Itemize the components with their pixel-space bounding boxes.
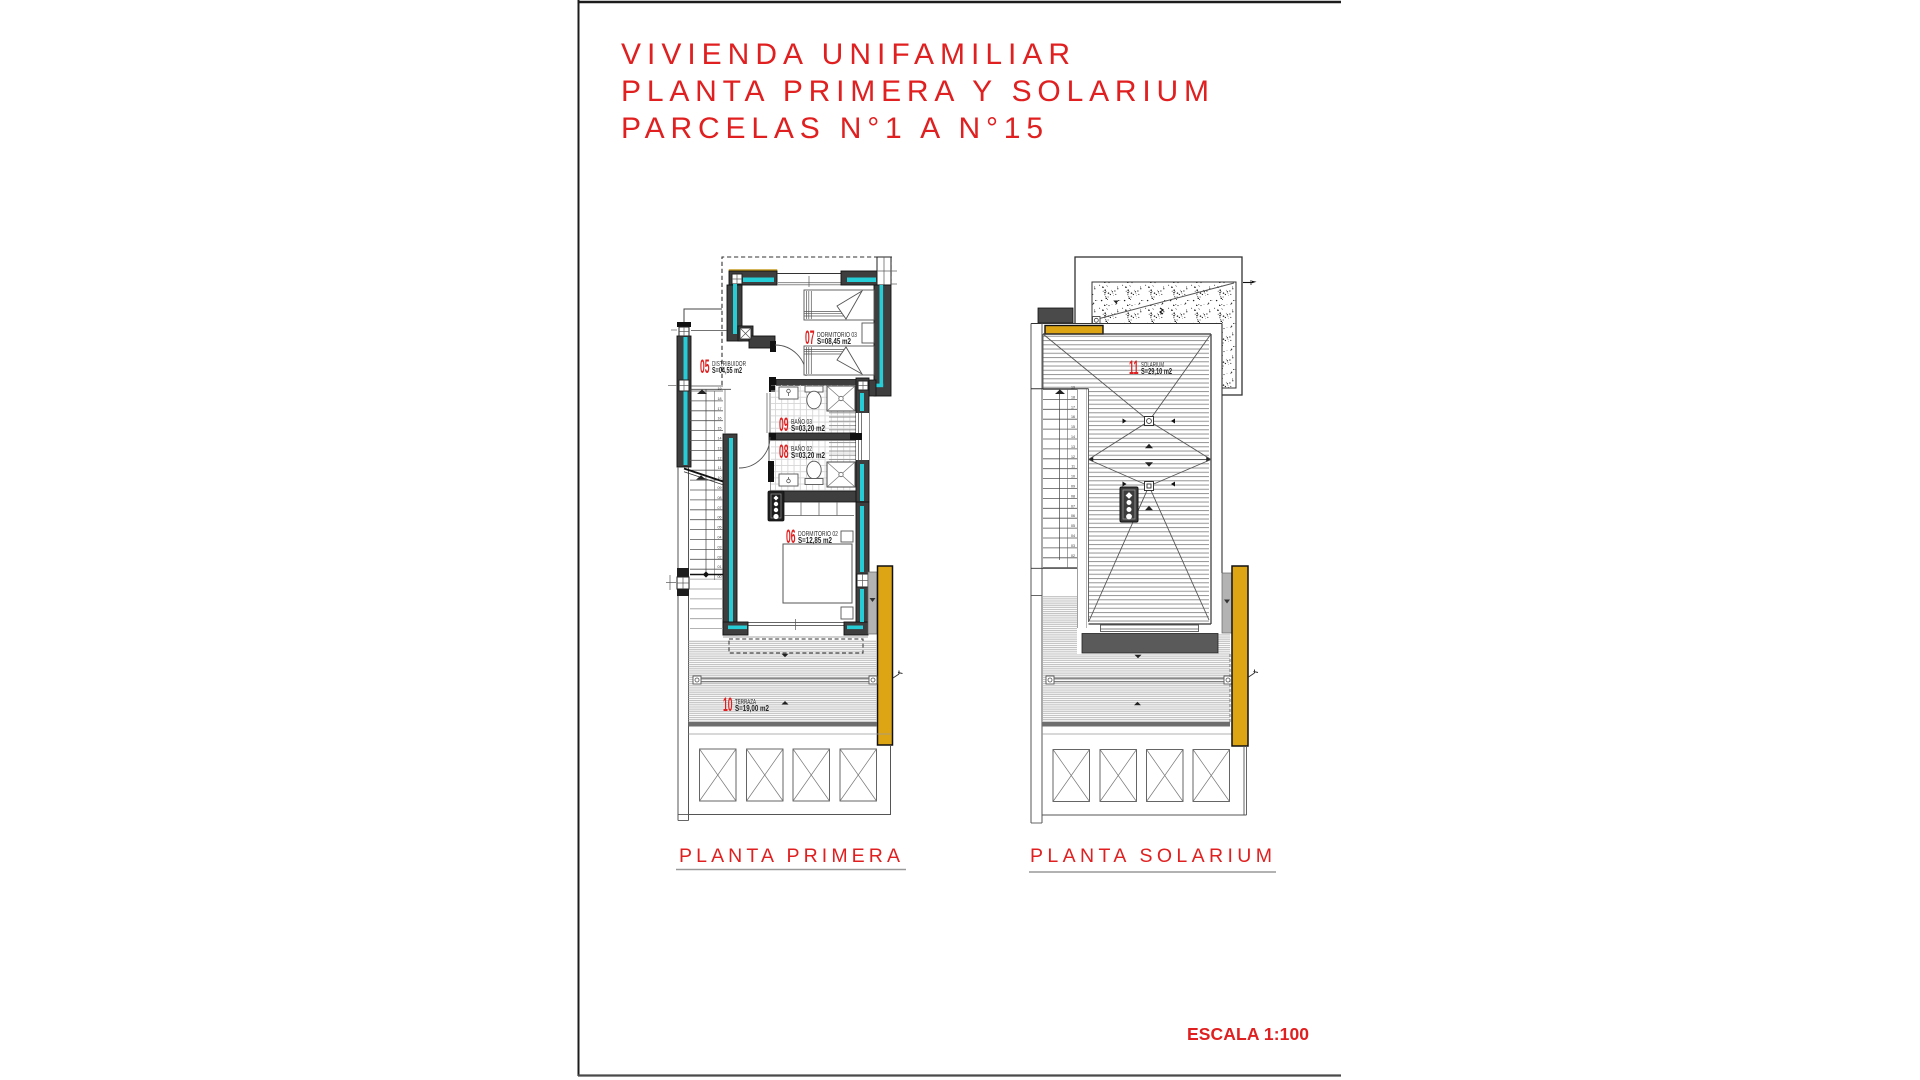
svg-text:11: 11 [1129, 358, 1139, 379]
svg-text:03: 03 [718, 545, 722, 549]
svg-text:16: 16 [1071, 415, 1075, 419]
svg-text:S=19,00 m2: S=19,00 m2 [735, 704, 769, 713]
svg-text:17: 17 [718, 407, 722, 411]
svg-text:14: 14 [718, 437, 722, 441]
svg-text:02: 02 [718, 555, 722, 559]
svg-text:S=29,10 m2: S=29,10 m2 [1141, 367, 1172, 376]
svg-text:11: 11 [718, 466, 722, 470]
svg-text:19: 19 [718, 387, 722, 391]
svg-text:13: 13 [1071, 445, 1075, 449]
svg-text:18: 18 [718, 397, 722, 401]
svg-text:S=04,55 m2: S=04,55 m2 [712, 366, 742, 375]
svg-text:07: 07 [718, 506, 722, 510]
svg-text:05: 05 [718, 526, 722, 530]
svg-text:10: 10 [723, 695, 733, 716]
svg-text:08: 08 [779, 442, 789, 463]
svg-text:PLANTA PRIMERA Y SOLARIUM: PLANTA PRIMERA Y SOLARIUM [621, 75, 1209, 108]
svg-text:15: 15 [718, 427, 722, 431]
svg-text:S=03,20 m2: S=03,20 m2 [791, 424, 825, 433]
svg-text:12: 12 [1071, 455, 1075, 459]
svg-text:06: 06 [718, 516, 722, 520]
svg-text:12: 12 [718, 456, 722, 460]
svg-text:15: 15 [1071, 425, 1075, 429]
svg-text:18: 18 [1071, 395, 1075, 399]
svg-text:17: 17 [1071, 405, 1075, 409]
svg-text:S=12,85 m2: S=12,85 m2 [798, 536, 832, 545]
svg-text:03: 03 [1071, 544, 1075, 548]
svg-text:08: 08 [1071, 494, 1075, 498]
svg-text:16: 16 [718, 417, 722, 421]
svg-text:S=08,45 m2: S=08,45 m2 [817, 337, 851, 346]
svg-text:00: 00 [718, 575, 722, 579]
svg-text:07: 07 [1071, 504, 1075, 508]
svg-text:02: 02 [1071, 554, 1075, 558]
svg-text:S=03,20 m2: S=03,20 m2 [791, 451, 825, 460]
svg-text:ESCALA 1:100: ESCALA 1:100 [1187, 1024, 1309, 1044]
svg-text:09: 09 [718, 486, 722, 490]
svg-text:06: 06 [786, 527, 796, 548]
svg-text:13: 13 [718, 446, 722, 450]
svg-text:08: 08 [718, 496, 722, 500]
svg-text:06: 06 [1071, 514, 1075, 518]
svg-text:05: 05 [1071, 524, 1075, 528]
svg-text:01: 01 [718, 565, 722, 569]
svg-text:04: 04 [718, 536, 722, 540]
svg-text:05: 05 [700, 357, 710, 378]
svg-text:11: 11 [1071, 465, 1075, 469]
svg-text:09: 09 [1071, 485, 1075, 489]
svg-text:PARCELAS N°1 A N°15: PARCELAS N°1 A N°15 [621, 112, 1043, 145]
svg-text:07: 07 [805, 328, 815, 349]
svg-text:14: 14 [1071, 435, 1075, 439]
svg-text:04: 04 [1071, 534, 1075, 538]
svg-text:10: 10 [1071, 475, 1075, 479]
